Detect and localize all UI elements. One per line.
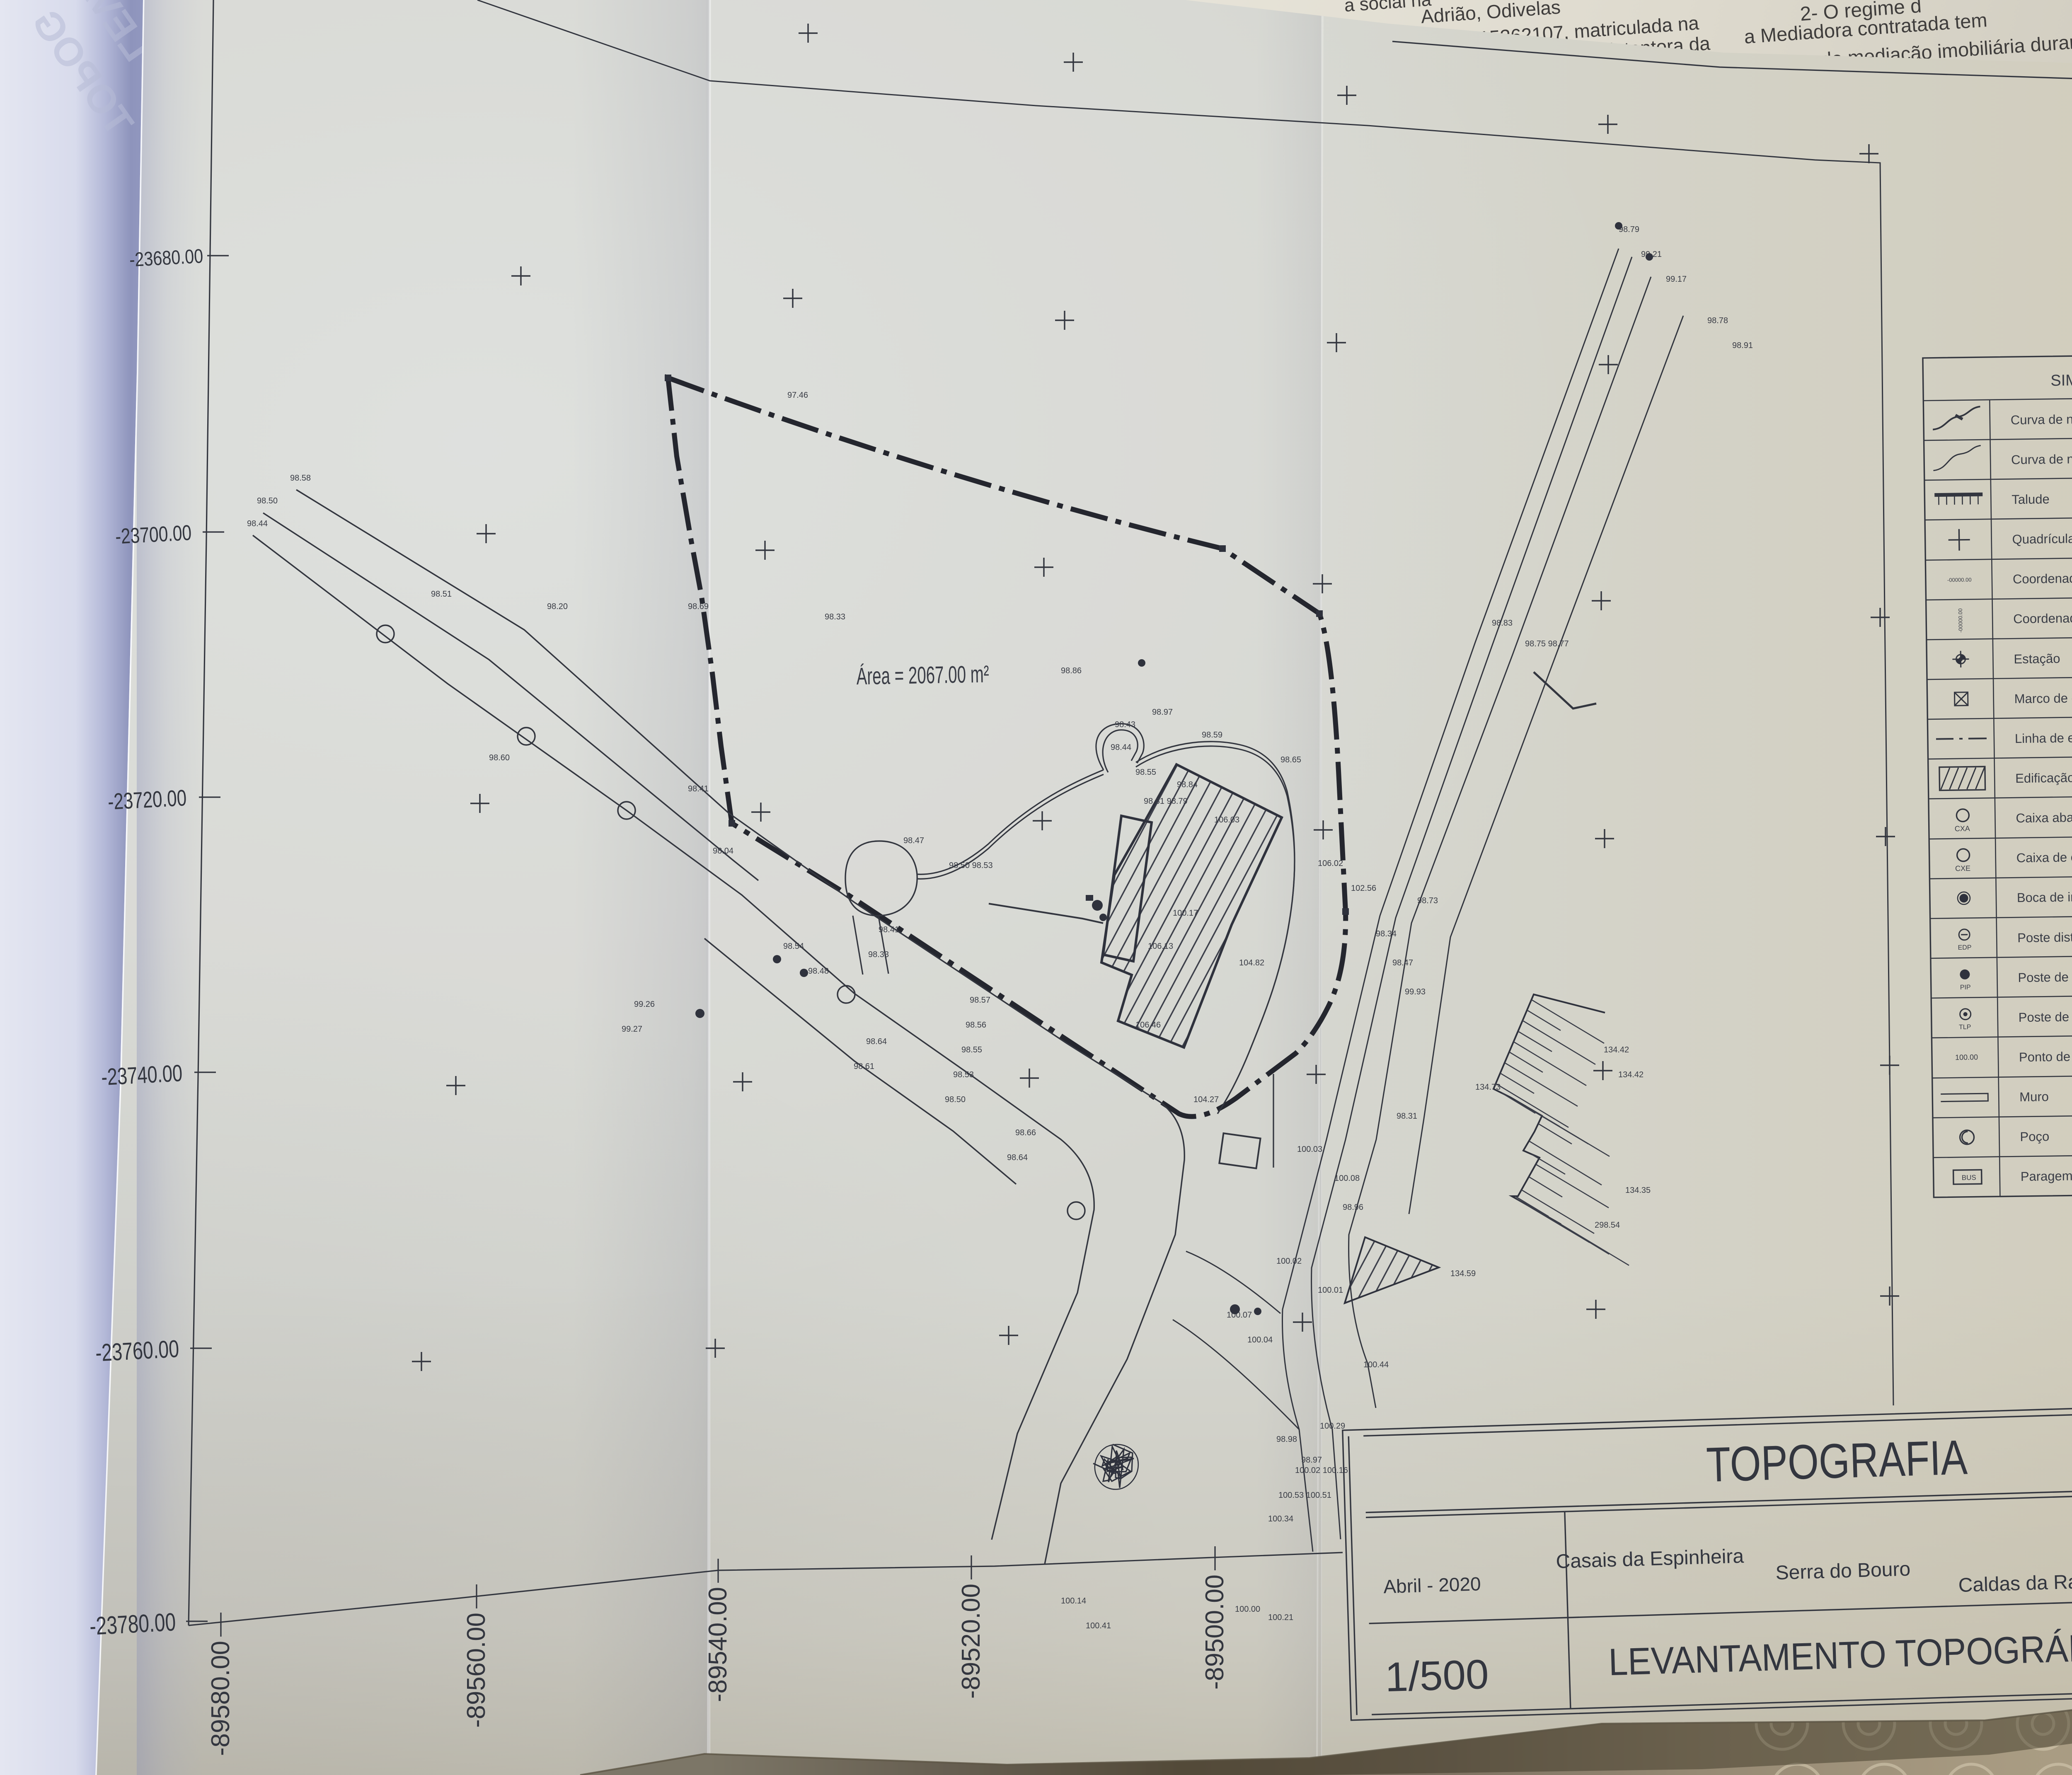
- svg-text:98.50: 98.50: [257, 496, 278, 505]
- svg-text:98.31: 98.31: [1397, 1112, 1417, 1121]
- svg-text:98.56: 98.56: [966, 1021, 986, 1030]
- svg-text:Caixa de esgoto doméstico: Caixa de esgoto doméstico: [2016, 849, 2072, 865]
- svg-text:98.75 98.77: 98.75 98.77: [1525, 639, 1569, 648]
- svg-text:98.04: 98.04: [713, 846, 733, 856]
- svg-text:98.65: 98.65: [1280, 755, 1301, 764]
- svg-text:Poste de iluminação: Poste de iluminação: [2018, 969, 2072, 985]
- svg-text:100.29: 100.29: [1320, 1422, 1345, 1431]
- svg-text:98.47: 98.47: [903, 836, 924, 845]
- svg-text:134.42: 134.42: [1604, 1045, 1629, 1054]
- svg-text:Poste de telecomunicações: Poste de telecomunicações: [2019, 1008, 2072, 1025]
- svg-text:134.59: 134.59: [1450, 1269, 1476, 1278]
- svg-text:TLP: TLP: [1959, 1024, 1971, 1031]
- svg-text:99.93: 99.93: [1405, 987, 1426, 996]
- svg-text:298.54: 298.54: [1595, 1221, 1620, 1230]
- svg-text:98.41: 98.41: [688, 784, 709, 793]
- svg-text:Coordenada m: Coordenada m: [2013, 611, 2072, 626]
- svg-text:-89580.00: -89580.00: [206, 1641, 235, 1756]
- svg-text:-00000.00: -00000.00: [1957, 608, 1964, 633]
- svg-text:97.46: 97.46: [787, 391, 808, 400]
- svg-text:98.86: 98.86: [1061, 666, 1082, 675]
- svg-text:104.82: 104.82: [1239, 958, 1264, 967]
- svg-text:104.27: 104.27: [1193, 1095, 1219, 1104]
- svg-text:98.34: 98.34: [1376, 929, 1397, 938]
- svg-text:100.17: 100.17: [1173, 909, 1198, 918]
- svg-text:Muro: Muro: [2019, 1089, 2049, 1104]
- svg-text:100.41: 100.41: [1086, 1621, 1111, 1630]
- svg-text:98.53: 98.53: [953, 1070, 974, 1079]
- svg-text:100.00: 100.00: [1955, 1053, 1978, 1062]
- svg-text:99.26: 99.26: [634, 1000, 655, 1009]
- svg-text:102.56: 102.56: [1351, 884, 1376, 893]
- svg-text:98.41: 98.41: [879, 925, 899, 934]
- svg-text:PIP: PIP: [1960, 984, 1971, 991]
- svg-text:-89540.00: -89540.00: [704, 1587, 732, 1702]
- svg-text:-23780.00: -23780.00: [89, 1608, 177, 1640]
- svg-text:Caldas da Rainha: Caldas da Rainha: [1958, 1570, 2072, 1596]
- svg-text:Paragem BUS: Paragem BUS: [2021, 1168, 2072, 1184]
- svg-text:-89520.00: -89520.00: [957, 1584, 985, 1699]
- svg-text:98.64: 98.64: [1007, 1153, 1028, 1162]
- svg-text:100.08: 100.08: [1334, 1174, 1360, 1183]
- svg-text:100.34: 100.34: [1268, 1514, 1293, 1524]
- svg-text:134.73: 134.73: [1475, 1083, 1501, 1092]
- svg-text:106.46: 106.46: [1135, 1021, 1161, 1030]
- svg-text:-23720.00: -23720.00: [107, 785, 187, 815]
- svg-text:Curva de nível secundária: Curva de nível secundária: [2011, 451, 2072, 467]
- svg-text:Curva de nível mestra com cota: Curva de nível mestra com cota: [2011, 411, 2072, 428]
- svg-text:98.54: 98.54: [783, 942, 804, 951]
- svg-text:98.66: 98.66: [1015, 1128, 1036, 1137]
- svg-text:98.44: 98.44: [247, 519, 268, 528]
- svg-text:98.98: 98.98: [1276, 1435, 1297, 1444]
- svg-text:98.43: 98.43: [1115, 720, 1135, 729]
- svg-text:98.50 98.53: 98.50 98.53: [949, 861, 993, 870]
- svg-text:Marco de estrema de propriedad: Marco de estrema de propriedade: [2014, 689, 2072, 706]
- svg-text:98.60: 98.60: [489, 753, 510, 762]
- svg-text:100.04: 100.04: [1247, 1335, 1273, 1345]
- svg-text:98.57: 98.57: [970, 996, 990, 1005]
- svg-text:99.17: 99.17: [1666, 275, 1687, 284]
- svg-text:100.02 100.16: 100.02 100.16: [1295, 1466, 1348, 1475]
- svg-text:BUS: BUS: [1962, 1173, 1976, 1181]
- svg-text:106.02: 106.02: [1318, 859, 1343, 868]
- svg-text:-89560.00: -89560.00: [462, 1613, 491, 1728]
- svg-text:CXA: CXA: [1955, 825, 1970, 833]
- svg-text:98.96: 98.96: [1343, 1203, 1363, 1212]
- svg-text:98.81 98.79: 98.81 98.79: [1144, 797, 1188, 806]
- svg-text:134.35: 134.35: [1625, 1186, 1651, 1195]
- svg-text:Estação: Estação: [2014, 651, 2060, 666]
- svg-text:98.59: 98.59: [1202, 730, 1222, 740]
- svg-text:98.55: 98.55: [1135, 768, 1156, 777]
- svg-text:98.97: 98.97: [1301, 1456, 1322, 1465]
- svg-text:100.53 100.51: 100.53 100.51: [1278, 1491, 1331, 1500]
- svg-text:Serra do Bouro: Serra do Bouro: [1775, 1558, 1911, 1584]
- svg-text:98.61: 98.61: [854, 1062, 874, 1071]
- svg-text:98.91: 98.91: [1732, 341, 1753, 350]
- svg-text:Edificação: Edificação: [2015, 770, 2072, 786]
- svg-text:98.73: 98.73: [1417, 896, 1438, 905]
- svg-text:-89500.00: -89500.00: [1201, 1574, 1229, 1690]
- svg-text:CXE: CXE: [1955, 864, 1970, 873]
- svg-text:-23740.00: -23740.00: [101, 1060, 183, 1091]
- svg-text:Linha de estrema: Linha de estrema: [2015, 730, 2072, 746]
- svg-text:100.01: 100.01: [1318, 1286, 1343, 1295]
- svg-text:98.44: 98.44: [1111, 743, 1131, 752]
- svg-text:SIMBOLOGIA: SIMBOLOGIA: [2050, 371, 2072, 389]
- svg-text:98.33: 98.33: [825, 612, 845, 621]
- svg-text:-23680.00: -23680.00: [129, 245, 204, 271]
- svg-text:98.50: 98.50: [945, 1095, 966, 1104]
- svg-text:98.78: 98.78: [1707, 316, 1728, 325]
- svg-text:Poço: Poço: [2020, 1129, 2049, 1144]
- svg-text:Poste distribuição EDP: Poste distribuição EDP: [2017, 929, 2072, 945]
- svg-text:Boca de incêndio: Boca de incêndio: [2017, 889, 2072, 905]
- svg-text:EDP: EDP: [1958, 944, 1971, 951]
- svg-text:Coordenada p: Coordenada p: [2013, 571, 2072, 587]
- svg-text:100.03: 100.03: [1297, 1145, 1322, 1154]
- svg-text:106.03: 106.03: [1214, 815, 1239, 825]
- svg-text:-23760.00: -23760.00: [95, 1335, 180, 1366]
- svg-text:98.58: 98.58: [290, 474, 311, 483]
- svg-text:100.14: 100.14: [1061, 1596, 1086, 1606]
- svg-text:1/500: 1/500: [1385, 1651, 1489, 1700]
- svg-text:100.02: 100.02: [1276, 1257, 1302, 1266]
- svg-text:100.44: 100.44: [1363, 1360, 1389, 1369]
- svg-text:98.97: 98.97: [1152, 708, 1173, 717]
- svg-text:Abril - 2020: Abril - 2020: [1383, 1573, 1481, 1597]
- svg-text:Área = 2067.00 m²: Área = 2067.00 m²: [856, 660, 989, 690]
- svg-text:98.47: 98.47: [1392, 958, 1413, 967]
- svg-text:98.33: 98.33: [868, 950, 889, 959]
- svg-text:98.83: 98.83: [1492, 619, 1513, 628]
- svg-text:-00000.00: -00000.00: [1947, 577, 1972, 583]
- svg-text:98.64: 98.64: [866, 1037, 887, 1046]
- svg-text:100.07: 100.07: [1227, 1311, 1252, 1320]
- svg-text:134.42: 134.42: [1618, 1070, 1644, 1079]
- svg-text:Ponto de cota: Ponto de cota: [2019, 1049, 2072, 1065]
- svg-text:98.48: 98.48: [808, 967, 829, 976]
- svg-text:98.55: 98.55: [961, 1045, 982, 1054]
- svg-text:98.20: 98.20: [547, 602, 568, 611]
- svg-text:Quadrícula de coordenação: Quadrícula de coordenação: [2012, 530, 2072, 547]
- svg-text:100.00: 100.00: [1235, 1605, 1260, 1614]
- svg-text:98.51: 98.51: [431, 590, 452, 599]
- svg-text:106.13: 106.13: [1148, 942, 1173, 951]
- svg-text:Caixa abastecimento de água: Caixa abastecimento de água: [2016, 809, 2072, 825]
- svg-text:98.84: 98.84: [1177, 780, 1198, 789]
- svg-text:Talude: Talude: [2011, 492, 2050, 507]
- svg-text:98.69: 98.69: [688, 602, 709, 611]
- svg-text:100.21: 100.21: [1268, 1613, 1293, 1622]
- svg-text:TOPOGRAFIA: TOPOGRAFIA: [1706, 1430, 1968, 1492]
- svg-text:99.27: 99.27: [622, 1025, 642, 1034]
- svg-text:-23700.00: -23700.00: [115, 521, 192, 549]
